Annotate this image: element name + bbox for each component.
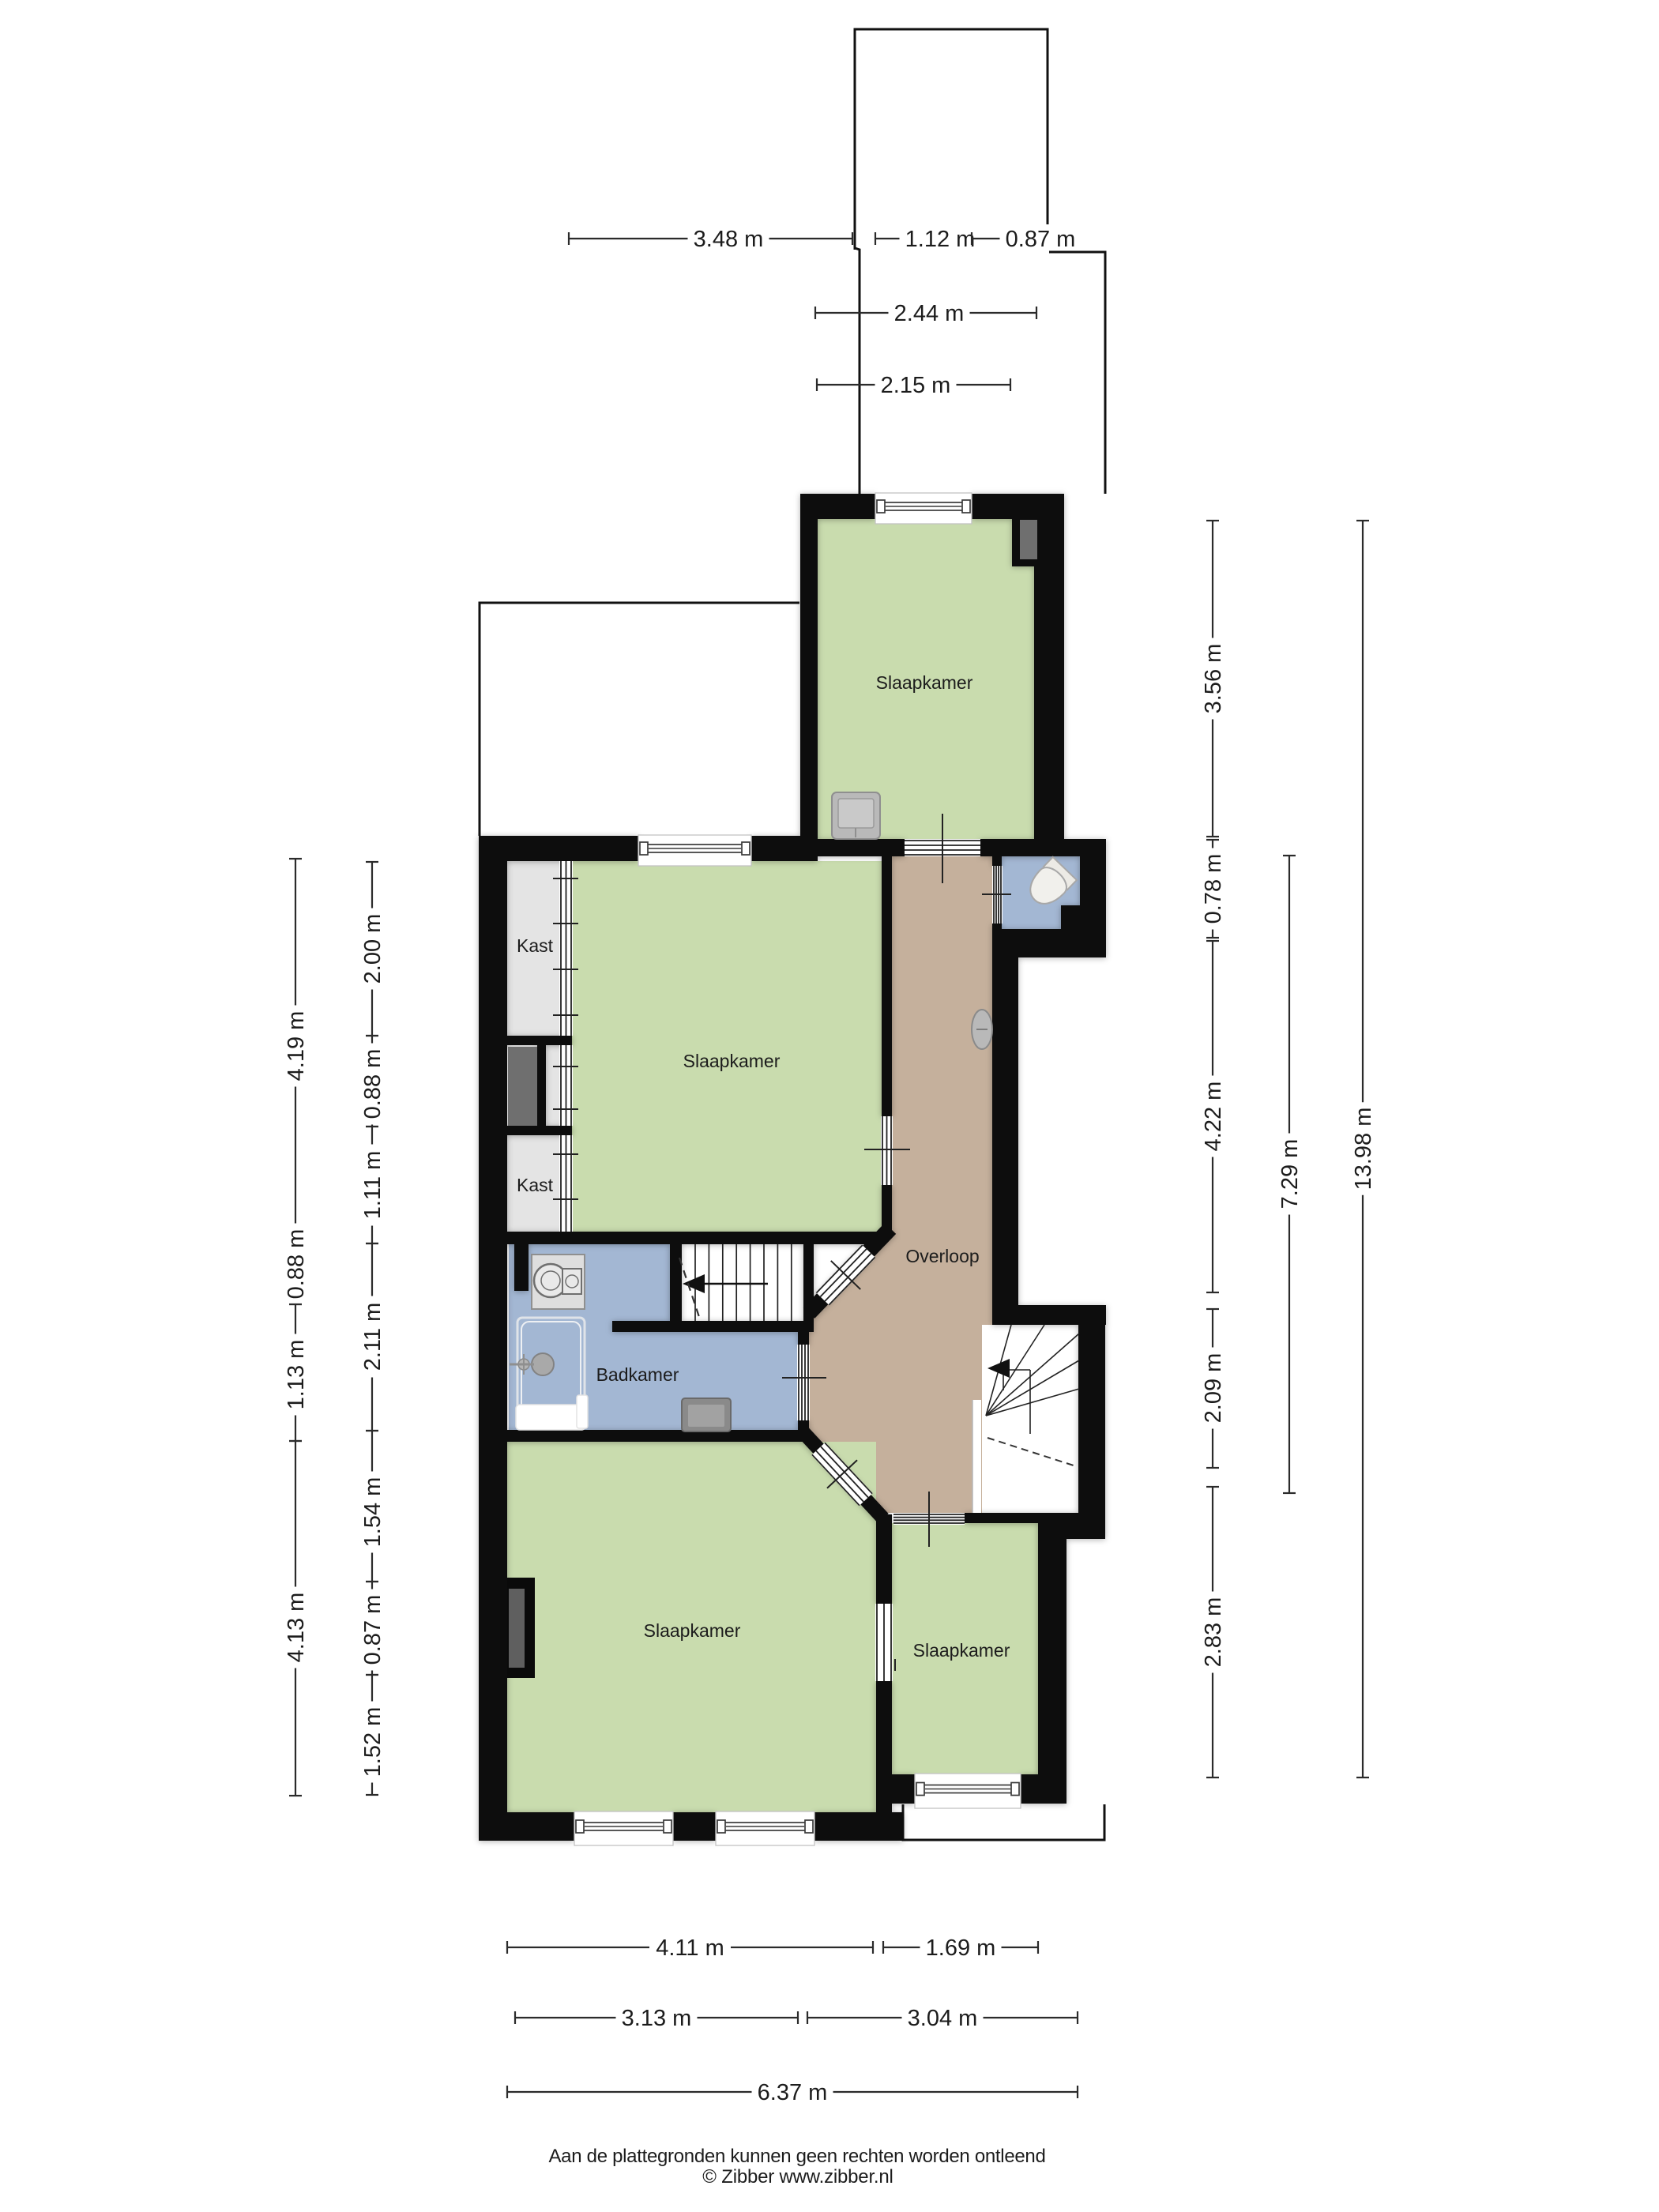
svg-text:0.87 m: 0.87 m [360, 1595, 386, 1665]
svg-text:2.83 m: 2.83 m [1201, 1597, 1226, 1668]
svg-text:0.78 m: 0.78 m [1201, 854, 1226, 924]
svg-text:© Zibber www.zibber.nl: © Zibber www.zibber.nl [702, 2166, 893, 2188]
svg-text:4.19 m: 4.19 m [284, 1011, 309, 1082]
svg-text:4.13 m: 4.13 m [284, 1593, 309, 1663]
svg-text:2.00 m: 2.00 m [360, 914, 386, 984]
svg-text:Slaapkamer: Slaapkamer [876, 672, 973, 693]
svg-text:1.12 m: 1.12 m [905, 227, 976, 252]
svg-text:Slaapkamer: Slaapkamer [683, 1051, 781, 1071]
svg-text:6.37 m: 6.37 m [758, 2080, 828, 2105]
svg-text:3.48 m: 3.48 m [694, 227, 764, 252]
svg-text:Slaapkamer: Slaapkamer [644, 1620, 741, 1641]
svg-text:1.69 m: 1.69 m [926, 1935, 996, 1961]
svg-text:2.15 m: 2.15 m [881, 373, 951, 398]
svg-text:4.11 m: 4.11 m [656, 1935, 724, 1961]
svg-text:Kast: Kast [517, 935, 554, 956]
svg-text:0.88 m: 0.88 m [360, 1049, 386, 1119]
svg-text:Aan de plattegronden kunnen ge: Aan de plattegronden kunnen geen rechten… [548, 2146, 1045, 2167]
svg-text:3.13 m: 3.13 m [622, 2006, 692, 2031]
svg-text:1.13 m: 1.13 m [284, 1340, 309, 1410]
svg-text:3.04 m: 3.04 m [908, 2006, 978, 2031]
svg-text:Overloop: Overloop [905, 1246, 979, 1266]
svg-text:Slaapkamer: Slaapkamer [913, 1640, 1010, 1661]
svg-text:1.11 m: 1.11 m [360, 1151, 386, 1220]
svg-text:0.88 m: 0.88 m [284, 1229, 309, 1300]
svg-text:3.56 m: 3.56 m [1201, 644, 1226, 714]
svg-text:1.54 m: 1.54 m [360, 1477, 386, 1548]
svg-text:2.11 m: 2.11 m [360, 1303, 386, 1371]
svg-text:4.22 m: 4.22 m [1201, 1082, 1226, 1152]
svg-text:7.29 m: 7.29 m [1277, 1139, 1303, 1209]
svg-text:0.87 m: 0.87 m [1006, 227, 1076, 252]
svg-text:Kast: Kast [517, 1175, 554, 1195]
svg-text:2.44 m: 2.44 m [894, 301, 965, 326]
svg-text:Badkamer: Badkamer [596, 1364, 679, 1385]
svg-text:2.09 m: 2.09 m [1201, 1353, 1226, 1424]
svg-text:13.98 m: 13.98 m [1351, 1108, 1376, 1191]
svg-text:1.52 m: 1.52 m [360, 1707, 386, 1777]
